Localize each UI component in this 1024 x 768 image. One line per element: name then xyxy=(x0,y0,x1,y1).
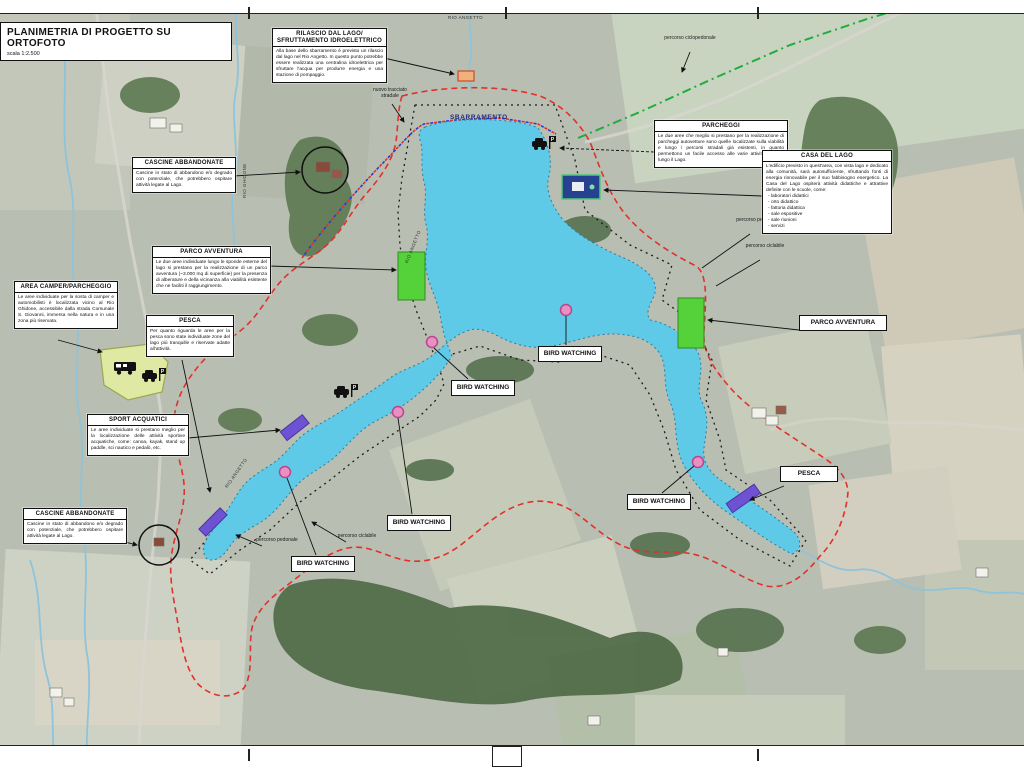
callout-cascine-south: CASCINE ABBANDONATE Cascine in stato di … xyxy=(23,508,127,544)
callout-pesca: PESCA Per quanto riguarda le aree per la… xyxy=(146,315,234,357)
callout-sport-acquatici: SPORT ACQUATICI Le aree individuate si p… xyxy=(87,414,189,456)
callout-body: Cascine in stato di abbandono e/o degrad… xyxy=(133,169,235,192)
parco-avventura-area-east xyxy=(678,298,704,348)
title-block: PLANIMETRIA DI PROGETTO SU ORTOFOTO scal… xyxy=(0,22,232,61)
callout-title: PARCO AVVENTURA xyxy=(153,247,270,258)
callout-cascine-north: CASCINE ABBANDONATE Cascine in stato di … xyxy=(132,157,236,193)
fold-tick xyxy=(248,749,250,761)
callout-title: PARCHEGGI xyxy=(655,121,787,132)
label-sbarramento: SBARRAMENTO xyxy=(450,114,508,121)
callout-title: CASCINE ABBANDONATE xyxy=(133,158,235,169)
label-pesca-east: PESCA xyxy=(780,466,838,482)
sheet-label-box xyxy=(492,746,522,767)
casa-del-lago-roof xyxy=(572,182,584,191)
callout-body: Le aree individuate si prestano meglio p… xyxy=(88,426,188,455)
bird-watching-point xyxy=(280,467,291,478)
callout-body: Alla base dello sbarramento è previsto u… xyxy=(273,47,386,82)
sheet-border-top xyxy=(0,0,1024,14)
fold-tick xyxy=(248,7,250,19)
callout-parco-avventura: PARCO AVVENTURA Le due aree individuate … xyxy=(152,246,271,294)
parco-avventura-area-west xyxy=(398,252,425,300)
label-percorso-ciclabile: percorso ciclabile xyxy=(744,244,786,250)
bird-watching-point xyxy=(693,457,704,468)
callout-title: CASCINE ABBANDONATE xyxy=(24,509,126,520)
label-bird-watching: BIRD WATCHING xyxy=(291,556,355,572)
callout-body: L'edificio previsto in quest'area, con v… xyxy=(763,162,891,194)
bird-watching-point xyxy=(393,407,404,418)
callout-title: AREA CAMPER/PARCHEGGIO xyxy=(15,282,117,293)
casa-del-lago-dot xyxy=(590,185,595,190)
fold-tick xyxy=(757,7,759,19)
label-bird-watching: BIRD WATCHING xyxy=(627,494,691,510)
label-bird-watching: BIRD WATCHING xyxy=(451,380,515,396)
fold-tick xyxy=(505,7,507,19)
callout-list: laboratori didattici orto didattico fatt… xyxy=(763,194,891,233)
label-bird-watching: BIRD WATCHING xyxy=(387,515,451,531)
bird-watching-point xyxy=(427,337,438,348)
callout-title: SPORT ACQUATICI xyxy=(88,415,188,426)
callout-title: CASA DEL LAGO xyxy=(763,151,891,162)
callout-body: Le due aree individuate lungo le sponde … xyxy=(153,258,270,293)
callout-title: PESCA xyxy=(147,316,233,327)
callout-title: RILASCIO DAL LAGO/ SFRUTTAMENTO IDROELET… xyxy=(273,29,386,47)
label-nuovo-tracciato: nuovo tracciato stradale xyxy=(366,88,414,100)
callout-body: Le aree individuate per la sosta di camp… xyxy=(15,293,117,328)
callout-body: Cascine in stato di abbandono e/o degrad… xyxy=(24,520,126,543)
callout-body: Per quanto riguarda le aree per la pesca… xyxy=(147,327,233,356)
label-rio-ghidone: RIO GHIDONE xyxy=(242,163,247,198)
page-title: PLANIMETRIA DI PROGETTO SU ORTOFOTO xyxy=(7,27,225,49)
callout-rilascio: RILASCIO DAL LAGO/ SFRUTTAMENTO IDROELET… xyxy=(272,28,387,83)
label-percorso-ciclopedonale: percorso ciclopedonale xyxy=(664,36,716,42)
bird-watching-point xyxy=(561,305,572,316)
label-percorso-pedonale: percorso pedonale xyxy=(256,538,298,544)
fold-tick xyxy=(757,749,759,761)
label-bird-watching: BIRD WATCHING xyxy=(538,346,602,362)
list-item: servizi xyxy=(768,224,888,230)
dam-release-marker xyxy=(458,71,474,81)
callout-area-camper: AREA CAMPER/PARCHEGGIO Le aree individua… xyxy=(14,281,118,329)
plan-sheet: P xyxy=(0,0,1024,768)
callout-casa-del-lago: CASA DEL LAGO L'edificio previsto in que… xyxy=(762,150,892,234)
label-rio-angetto: RIO ANGETTO xyxy=(448,15,483,20)
label-percorso-ciclabile: percorso ciclabile xyxy=(336,534,378,540)
label-parco-avventura-east: PARCO AVVENTURA xyxy=(799,315,887,331)
scale-label: scala 1:2.500 xyxy=(7,51,225,57)
